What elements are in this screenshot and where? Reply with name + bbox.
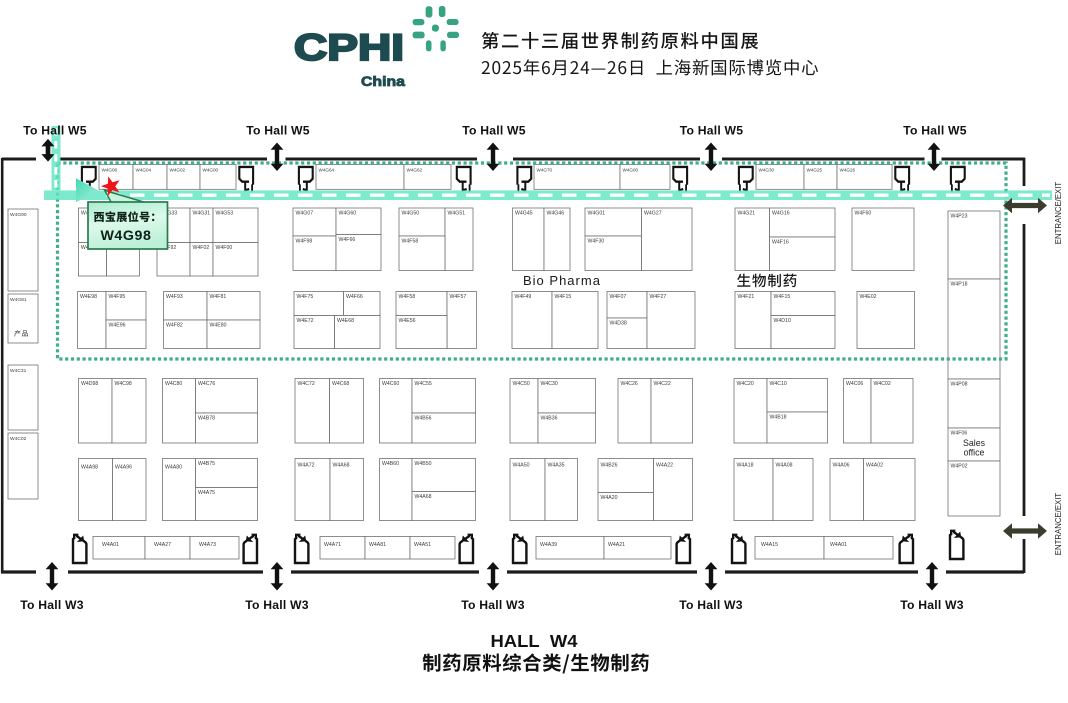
svg-text:To Hall W5: To Hall W5 [680,124,743,138]
svg-text:W4A73: W4A73 [199,542,216,548]
svg-text:W4G51: W4G51 [448,211,466,217]
svg-text:office: office [964,448,985,458]
svg-text:W4A80: W4A80 [165,465,182,471]
svg-text:W4F16: W4F16 [772,240,789,246]
svg-text:W4P18: W4P18 [951,282,968,288]
svg-text:To Hall W5: To Hall W5 [462,124,525,138]
svg-text:W4A71: W4A71 [324,542,341,548]
svg-text:W4F75: W4F75 [297,294,314,300]
svg-text:W4A96: W4A96 [115,465,132,471]
svg-text:W4F93: W4F93 [166,294,183,300]
svg-text:W4G02: W4G02 [170,168,186,173]
svg-text:W4G64: W4G64 [319,168,335,173]
svg-text:W4E98: W4E98 [80,294,97,300]
svg-text:W4C22: W4C22 [654,381,671,387]
svg-text:To Hall W3: To Hall W3 [461,598,524,612]
svg-text:W4F02: W4F02 [193,245,210,251]
svg-text:W4F15: W4F15 [555,294,572,300]
svg-text:W4A68: W4A68 [415,494,432,500]
svg-text:W4C06: W4C06 [846,381,863,387]
svg-text:W4G90: W4G90 [10,212,27,218]
svg-text:W4F95: W4F95 [109,294,126,300]
svg-text:W4G62: W4G62 [407,168,423,173]
svg-text:W4E02: W4E02 [860,294,877,300]
svg-text:W4F57: W4F57 [450,294,467,300]
svg-text:W4E72: W4E72 [297,318,314,324]
svg-text:W4G31: W4G31 [193,211,211,217]
svg-text:W4G00: W4G00 [203,168,219,173]
svg-text:W4C26: W4C26 [621,381,638,387]
svg-text:To Hall W3: To Hall W3 [900,598,963,612]
svg-text:W4F07: W4F07 [610,294,627,300]
svg-text:To Hall W5: To Hall W5 [903,124,966,138]
svg-text:W4F06: W4F06 [951,431,968,437]
svg-text:To Hall W5: To Hall W5 [246,124,309,138]
svg-text:W4G00: W4G00 [623,168,639,173]
svg-text:W4A08: W4A08 [776,463,793,469]
svg-text:W4A01: W4A01 [830,542,847,548]
svg-text:W4F98: W4F98 [296,239,313,245]
svg-text:W4P23: W4P23 [951,214,968,220]
svg-text:W4E96: W4E96 [109,323,126,329]
svg-text:W4A75: W4A75 [198,490,215,496]
svg-text:W4D38: W4D38 [610,321,627,327]
svg-text:W4B75: W4B75 [198,461,215,467]
svg-text:W4C72: W4C72 [298,381,315,387]
svg-text:W4A27: W4A27 [154,542,171,548]
svg-text:W4F21: W4F21 [738,294,755,300]
svg-text:W4D98: W4D98 [81,381,98,387]
svg-text:W4A06: W4A06 [833,463,850,469]
svg-text:W4A20: W4A20 [601,495,618,501]
svg-text:W4G81: W4G81 [10,297,27,303]
svg-text:W4G46: W4G46 [547,211,565,217]
svg-text:W4B36: W4B36 [541,416,558,422]
svg-text:To Hall W3: To Hall W3 [20,598,83,612]
svg-text:W4B26: W4B26 [601,463,618,469]
svg-text:W4C10: W4C10 [770,381,787,387]
svg-text:W4G30: W4G30 [759,168,775,173]
svg-text:W4A21: W4A21 [608,542,625,548]
svg-text:W4F58: W4F58 [402,239,419,245]
svg-text:W4G21: W4G21 [738,211,756,217]
svg-text:W4B60: W4B60 [382,461,399,467]
svg-text:W4A72: W4A72 [298,463,315,469]
svg-text:W4E80: W4E80 [210,323,227,329]
svg-text:W4E68: W4E68 [337,318,354,324]
svg-text:W4G98: W4G98 [100,228,151,244]
svg-text:W4C76: W4C76 [198,381,215,387]
svg-text:W4D10: W4D10 [774,318,791,324]
svg-text:W4C50: W4C50 [513,381,530,387]
svg-text:W4A02: W4A02 [866,463,883,469]
svg-text:China: China [361,74,406,89]
svg-text:W4F27: W4F27 [650,294,667,300]
svg-text:W4C60: W4C60 [382,381,399,387]
svg-text:HALL W4: HALL W4 [491,631,578,651]
svg-text:To Hall W5: To Hall W5 [23,124,86,138]
svg-text:W4F82: W4F82 [166,323,183,329]
svg-text:ENTRANCE/EXIT: ENTRANCE/EXIT [1054,493,1063,556]
svg-text:W4F00: W4F00 [216,245,233,251]
svg-text:W4G53: W4G53 [216,211,234,217]
svg-text:W4G06: W4G06 [102,168,118,173]
svg-text:To Hall W3: To Hall W3 [245,598,308,612]
svg-text:W4G45: W4G45 [515,211,533,217]
svg-text:W4G70: W4G70 [537,168,553,173]
svg-text:W4C20: W4C20 [737,381,754,387]
svg-text:W4A50: W4A50 [513,463,530,469]
svg-text:W4A98: W4A98 [81,465,98,471]
svg-text:To Hall W3: To Hall W3 [679,598,742,612]
svg-text:W4F15: W4F15 [774,294,791,300]
svg-text:W4A51: W4A51 [414,542,431,548]
svg-text:Bio Pharma: Bio Pharma [523,273,601,288]
svg-text:W4F81: W4F81 [210,294,227,300]
svg-text:W4A68: W4A68 [333,463,350,469]
svg-text:W4B18: W4B18 [770,415,787,421]
svg-text:W4E56: W4E56 [399,318,416,324]
svg-text:W4B78: W4B78 [198,416,215,422]
svg-text:W4G27: W4G27 [644,211,662,217]
svg-text:W4C31: W4C31 [10,368,27,374]
svg-text:W4F66: W4F66 [339,237,356,243]
svg-text:W4C02: W4C02 [10,436,27,442]
svg-text:W4A18: W4A18 [737,463,754,469]
svg-text:W4G50: W4G50 [402,211,420,217]
svg-text:W4C80: W4C80 [165,381,182,387]
svg-text:W4C55: W4C55 [415,381,432,387]
svg-text:W4G60: W4G60 [339,211,357,217]
svg-text:W4G26: W4G26 [840,168,856,173]
svg-text:W4F60: W4F60 [855,211,872,217]
svg-text:W4P02: W4P02 [951,464,968,470]
svg-text:W4A81: W4A81 [369,542,386,548]
svg-text:W4C30: W4C30 [541,381,558,387]
svg-text:Sales: Sales [963,438,986,448]
svg-text:W4G07: W4G07 [296,211,314,217]
svg-text:W4A39: W4A39 [540,542,557,548]
svg-text:W4A35: W4A35 [548,463,565,469]
svg-text:W4G16: W4G16 [772,211,790,217]
svg-text:W4F30: W4F30 [588,239,605,245]
svg-text:CPHI: CPHI [294,27,404,68]
svg-text:W4F66: W4F66 [346,294,363,300]
svg-text:W4G01: W4G01 [588,211,606,217]
svg-text:W4A15: W4A15 [761,542,778,548]
svg-text:W4C98: W4C98 [115,381,132,387]
svg-text:W4G25: W4G25 [807,168,823,173]
svg-text:W4F49: W4F49 [515,294,532,300]
svg-text:W4B50: W4B50 [415,461,432,467]
svg-text:ENTRANCE/EXIT: ENTRANCE/EXIT [1054,182,1063,245]
svg-text:W4F58: W4F58 [399,294,416,300]
svg-text:W4P08: W4P08 [951,382,968,388]
svg-text:W4G04: W4G04 [136,168,152,173]
svg-text:W4A22: W4A22 [656,463,673,469]
svg-text:W4C02: W4C02 [874,381,891,387]
svg-text:W4C68: W4C68 [332,381,349,387]
svg-text:W4A01: W4A01 [102,542,119,548]
svg-text:W4B56: W4B56 [415,416,432,422]
